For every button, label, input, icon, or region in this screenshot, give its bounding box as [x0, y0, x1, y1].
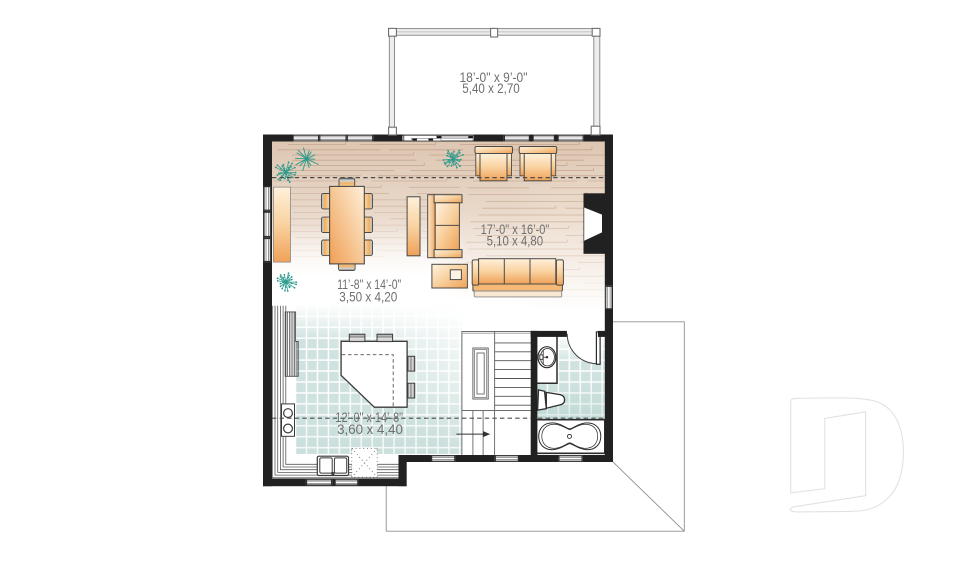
svg-text:3,60 x 4,40: 3,60 x 4,40: [337, 422, 403, 437]
svg-text:5,10 x 4,80: 5,10 x 4,80: [487, 233, 544, 248]
svg-text:5,40 x 2,70: 5,40 x 2,70: [462, 81, 520, 96]
svg-text:3,50 x 4,20: 3,50 x 4,20: [339, 289, 397, 304]
